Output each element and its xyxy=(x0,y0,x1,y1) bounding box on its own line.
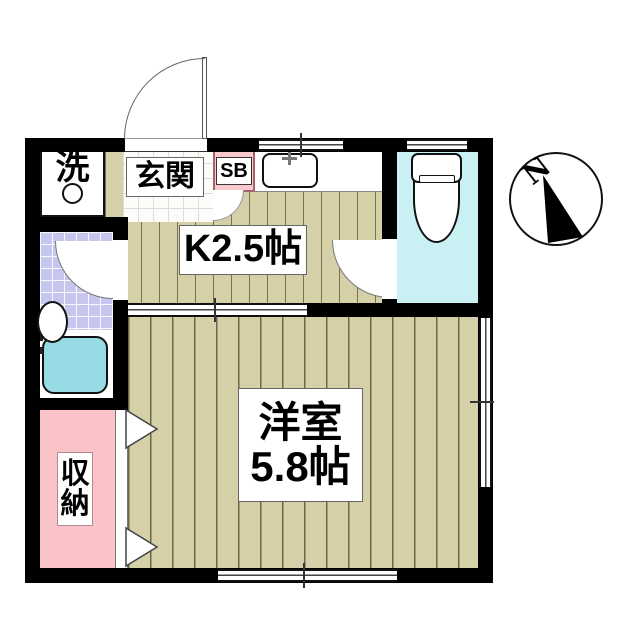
entrance-door-arc xyxy=(124,58,205,139)
toilet-door-gap xyxy=(382,239,397,299)
entrance-threshold xyxy=(125,138,207,152)
kitchen-window-tick xyxy=(300,133,302,157)
main-room-size-label: 5.8帖 xyxy=(250,445,350,489)
washbasin xyxy=(37,301,68,343)
faucet-bar-icon xyxy=(282,157,297,160)
wall-bathroom-bottom xyxy=(25,398,128,410)
entrance-label: 玄関 xyxy=(135,161,195,193)
wall-mid-horizontal xyxy=(307,303,493,317)
laundry-label: 洗 xyxy=(56,150,90,187)
shoe-box: SB xyxy=(213,150,255,192)
washer-drum-icon xyxy=(62,183,83,204)
storage-label-box: 収 納 xyxy=(57,452,93,526)
toilet-window xyxy=(407,139,467,151)
main-room-label-box: 洋室 5.8帖 xyxy=(238,388,363,502)
south-window xyxy=(218,569,397,582)
storage-label-char2: 納 xyxy=(60,489,89,519)
storage-label-char1: 収 xyxy=(60,459,89,489)
washing-machine: 洗 xyxy=(40,148,105,217)
shoe-box-label-box: SB xyxy=(216,157,252,185)
storage-door-track xyxy=(115,410,128,568)
floorplan-canvas: 洗 SB 玄関 K2.5帖 洋室 xyxy=(0,0,640,640)
main-room-name-label: 洋室 xyxy=(258,401,342,445)
bathtub xyxy=(42,336,108,394)
kitchen-label: K2.5帖 xyxy=(184,230,302,270)
south-window-tick xyxy=(303,563,305,588)
wall-left xyxy=(25,138,40,583)
east-window-tick xyxy=(470,401,494,403)
kitchen-label-box: K2.5帖 xyxy=(179,225,307,275)
kitchen-partition xyxy=(126,303,307,317)
partition-tick xyxy=(214,298,216,322)
toilet-seat-hinge xyxy=(419,175,455,183)
entrance-label-box: 玄関 xyxy=(126,157,204,197)
bathroom-door-gap xyxy=(113,240,128,300)
